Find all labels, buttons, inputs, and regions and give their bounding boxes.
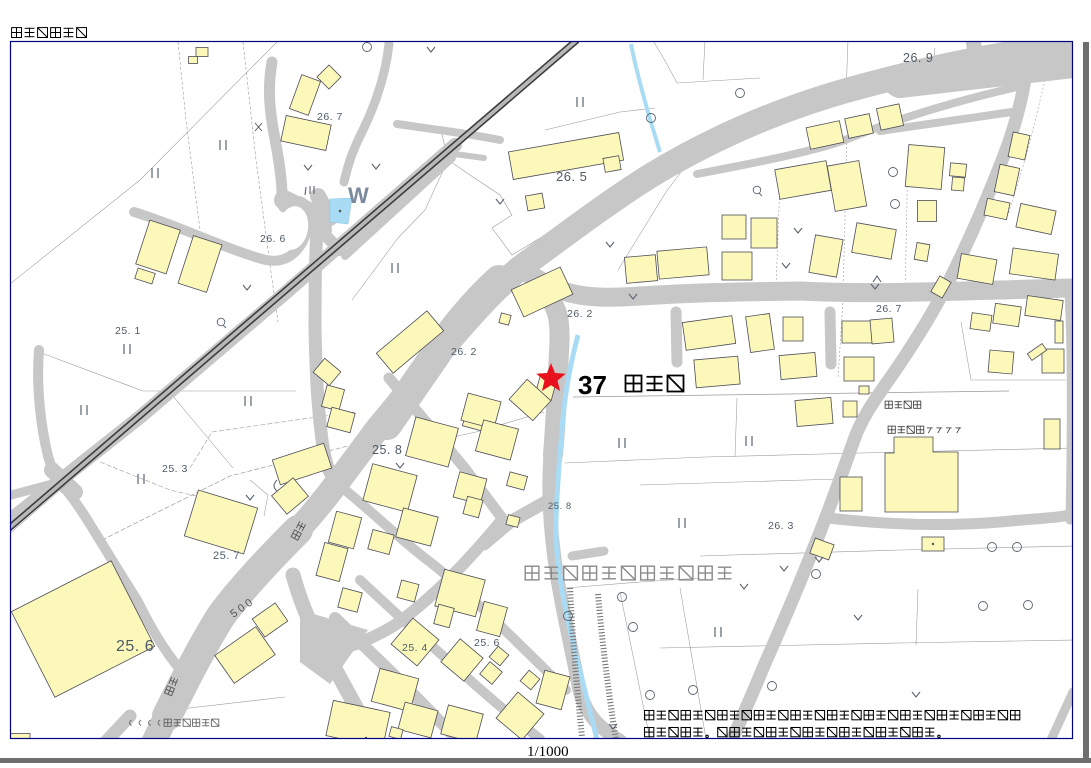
svg-text:25. 1: 25. 1 bbox=[115, 325, 141, 337]
svg-text:26. 2: 26. 2 bbox=[567, 308, 593, 320]
svg-text:26. 6: 26. 6 bbox=[260, 233, 286, 245]
svg-text:25. 4: 25. 4 bbox=[402, 642, 428, 654]
svg-text:26. 7: 26. 7 bbox=[876, 303, 902, 315]
svg-text:26. 3: 26. 3 bbox=[768, 520, 794, 532]
svg-text:25. 6: 25. 6 bbox=[474, 637, 500, 649]
svg-text:25. 8: 25. 8 bbox=[372, 443, 402, 457]
svg-text:37: 37 bbox=[578, 370, 607, 400]
svg-text:25. 7: 25. 7 bbox=[213, 550, 240, 562]
svg-text:26. 7: 26. 7 bbox=[317, 111, 343, 123]
svg-text:W: W bbox=[348, 183, 369, 208]
svg-text:1/1000: 1/1000 bbox=[527, 744, 569, 760]
svg-text:25. 8: 25. 8 bbox=[548, 501, 572, 512]
svg-text:25. 6: 25. 6 bbox=[116, 638, 154, 655]
svg-text:26. 5: 26. 5 bbox=[556, 169, 587, 184]
svg-text:25. 3: 25. 3 bbox=[162, 463, 188, 475]
svg-text:26. 9: 26. 9 bbox=[903, 51, 933, 65]
svg-text:26. 2: 26. 2 bbox=[451, 346, 477, 358]
